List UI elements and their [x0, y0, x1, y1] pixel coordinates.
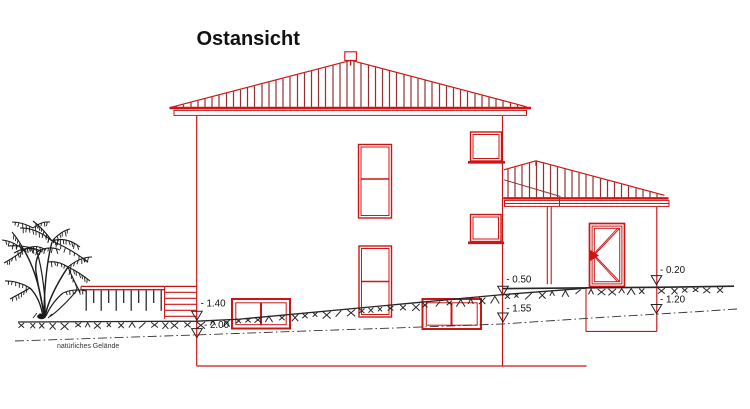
svg-text:- 2.00: - 2.00: [204, 320, 230, 331]
svg-text:- 0.20: - 0.20: [660, 265, 686, 276]
svg-text:Ostansicht: Ostansicht: [197, 28, 301, 50]
svg-text:natürliches Gelände: natürliches Gelände: [57, 343, 119, 350]
svg-text:- 1.20: - 1.20: [660, 294, 686, 305]
svg-text:- 0.50: - 0.50: [506, 275, 532, 286]
svg-text:- 1.40: - 1.40: [201, 298, 227, 309]
svg-text:- 1.55: - 1.55: [506, 303, 532, 314]
